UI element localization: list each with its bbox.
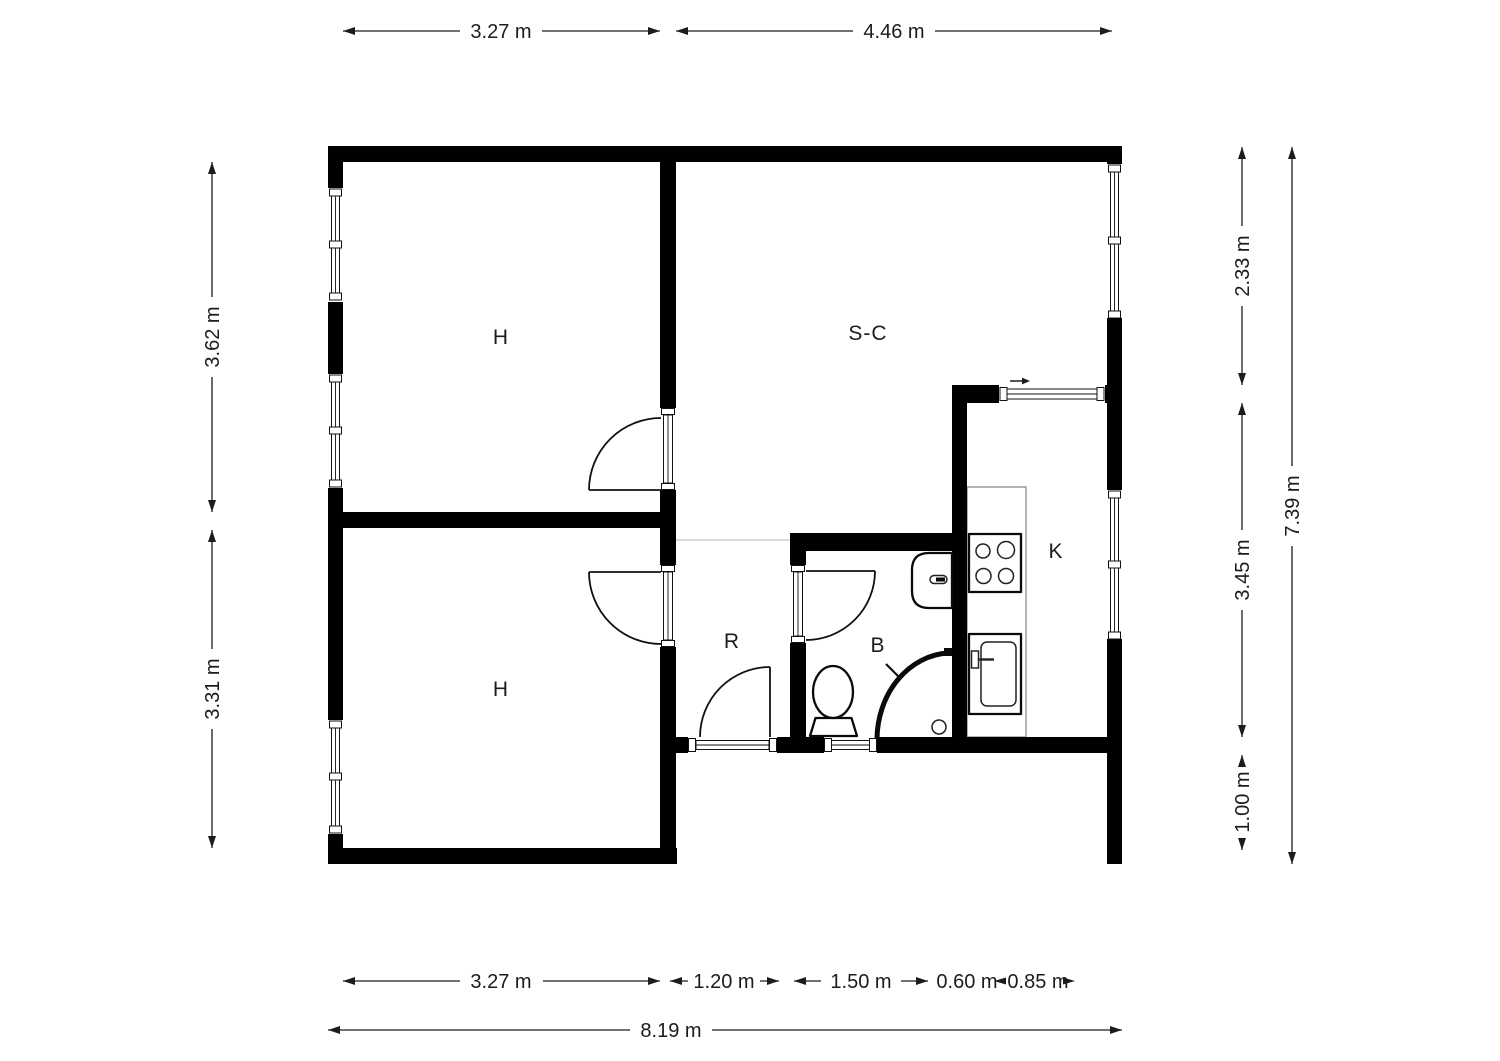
svg-text:1.50 m: 1.50 m [830,971,891,993]
floor-plan-canvas: H S-C H R B K 3.27 m 4.46 m 3.27 m 1.20 … [0,0,1500,1061]
dimension-bottom-hall: 1.20 m [670,971,779,993]
svg-text:3.27 m: 3.27 m [470,971,531,993]
window-left-top-2 [328,374,343,488]
stove-burners-icon [969,534,1021,592]
svg-text:4.46 m: 4.46 m [863,21,924,43]
window-right-kitchen [1107,490,1122,639]
dimension-bottom-bathroom: 1.50 m [794,971,928,993]
door-swing-symbol [700,667,770,737]
svg-text:0.60 m: 0.60 m [936,971,997,993]
dimension-bottom-bedroom: 3.27 m [343,971,660,993]
svg-text:0.85 m: 0.85 m [1007,971,1068,993]
dimension-top-left-room: 3.27 m [343,21,660,43]
swing-direction-arrow-icon [1010,378,1030,385]
svg-text:1.00 m: 1.00 m [1232,771,1254,832]
walls [328,146,1122,864]
bathroom-sink-icon [912,553,952,608]
wall-bathroom-top [790,533,967,551]
door-bathroom [790,565,875,643]
svg-text:8.19 m: 8.19 m [640,1020,701,1042]
wall-central [660,146,676,864]
room-label-hall: R [724,630,740,653]
dimension-bottom-total: 8.19 m [328,1020,1122,1042]
shower-enclosure-icon [877,648,952,739]
svg-text:7.39 m: 7.39 m [1282,475,1304,536]
svg-text:1.20 m: 1.20 m [693,971,754,993]
dimension-right-total: 7.39 m [1282,147,1304,864]
svg-text:2.33 m: 2.33 m [1232,235,1254,296]
window-bathroom-bottom [824,737,877,753]
floor-plan-drawing: H S-C H R B K 3.27 m 4.46 m 3.27 m 1.20 … [0,0,1500,1061]
wall-kitchen-left [952,385,967,753]
dimension-bottom-counter: 0.60 m [936,971,1006,993]
svg-text:3.45 m: 3.45 m [1232,539,1254,600]
door-swing-symbol [589,418,661,490]
svg-text:3.27 m: 3.27 m [470,21,531,43]
window-right-living [1107,164,1122,318]
room-label-kitchen: K [1048,540,1063,563]
door-swing-symbol [589,572,661,644]
dimension-right-upper: 2.33 m [1232,147,1254,385]
door-bedroom-bottom [589,565,676,647]
window-kitchen-passthrough [999,385,1105,403]
room-label-living-room: S-C [848,322,887,345]
kitchen-sink-icon [969,634,1021,714]
wall-bottom-left [328,848,677,864]
dimension-left-bottom-room: 3.31 m [202,530,224,848]
room-label-bedroom-top: H [493,326,509,349]
dimension-top-right-room: 4.46 m [676,21,1112,43]
window-left-bottom [328,720,343,834]
toilet-icon [810,666,857,736]
svg-text:3.62 m: 3.62 m [202,306,224,367]
svg-text:3.31 m: 3.31 m [202,658,224,719]
dimension-left-top-room: 3.62 m [202,162,224,512]
dimension-bottom-kitchen: 0.85 m [1007,971,1075,993]
room-label-bedroom-bottom: H [493,678,509,701]
window-left-top-1 [328,188,343,302]
door-swing-symbol [806,571,875,640]
room-label-bathroom: B [870,634,885,657]
door-entrance [688,667,777,753]
wall-bedroom-divider [328,512,676,528]
dimension-right-lower: 1.00 m [1232,755,1254,850]
dimension-right-middle: 3.45 m [1232,403,1254,737]
door-bedroom-top [589,408,676,490]
wall-top [328,146,1122,162]
